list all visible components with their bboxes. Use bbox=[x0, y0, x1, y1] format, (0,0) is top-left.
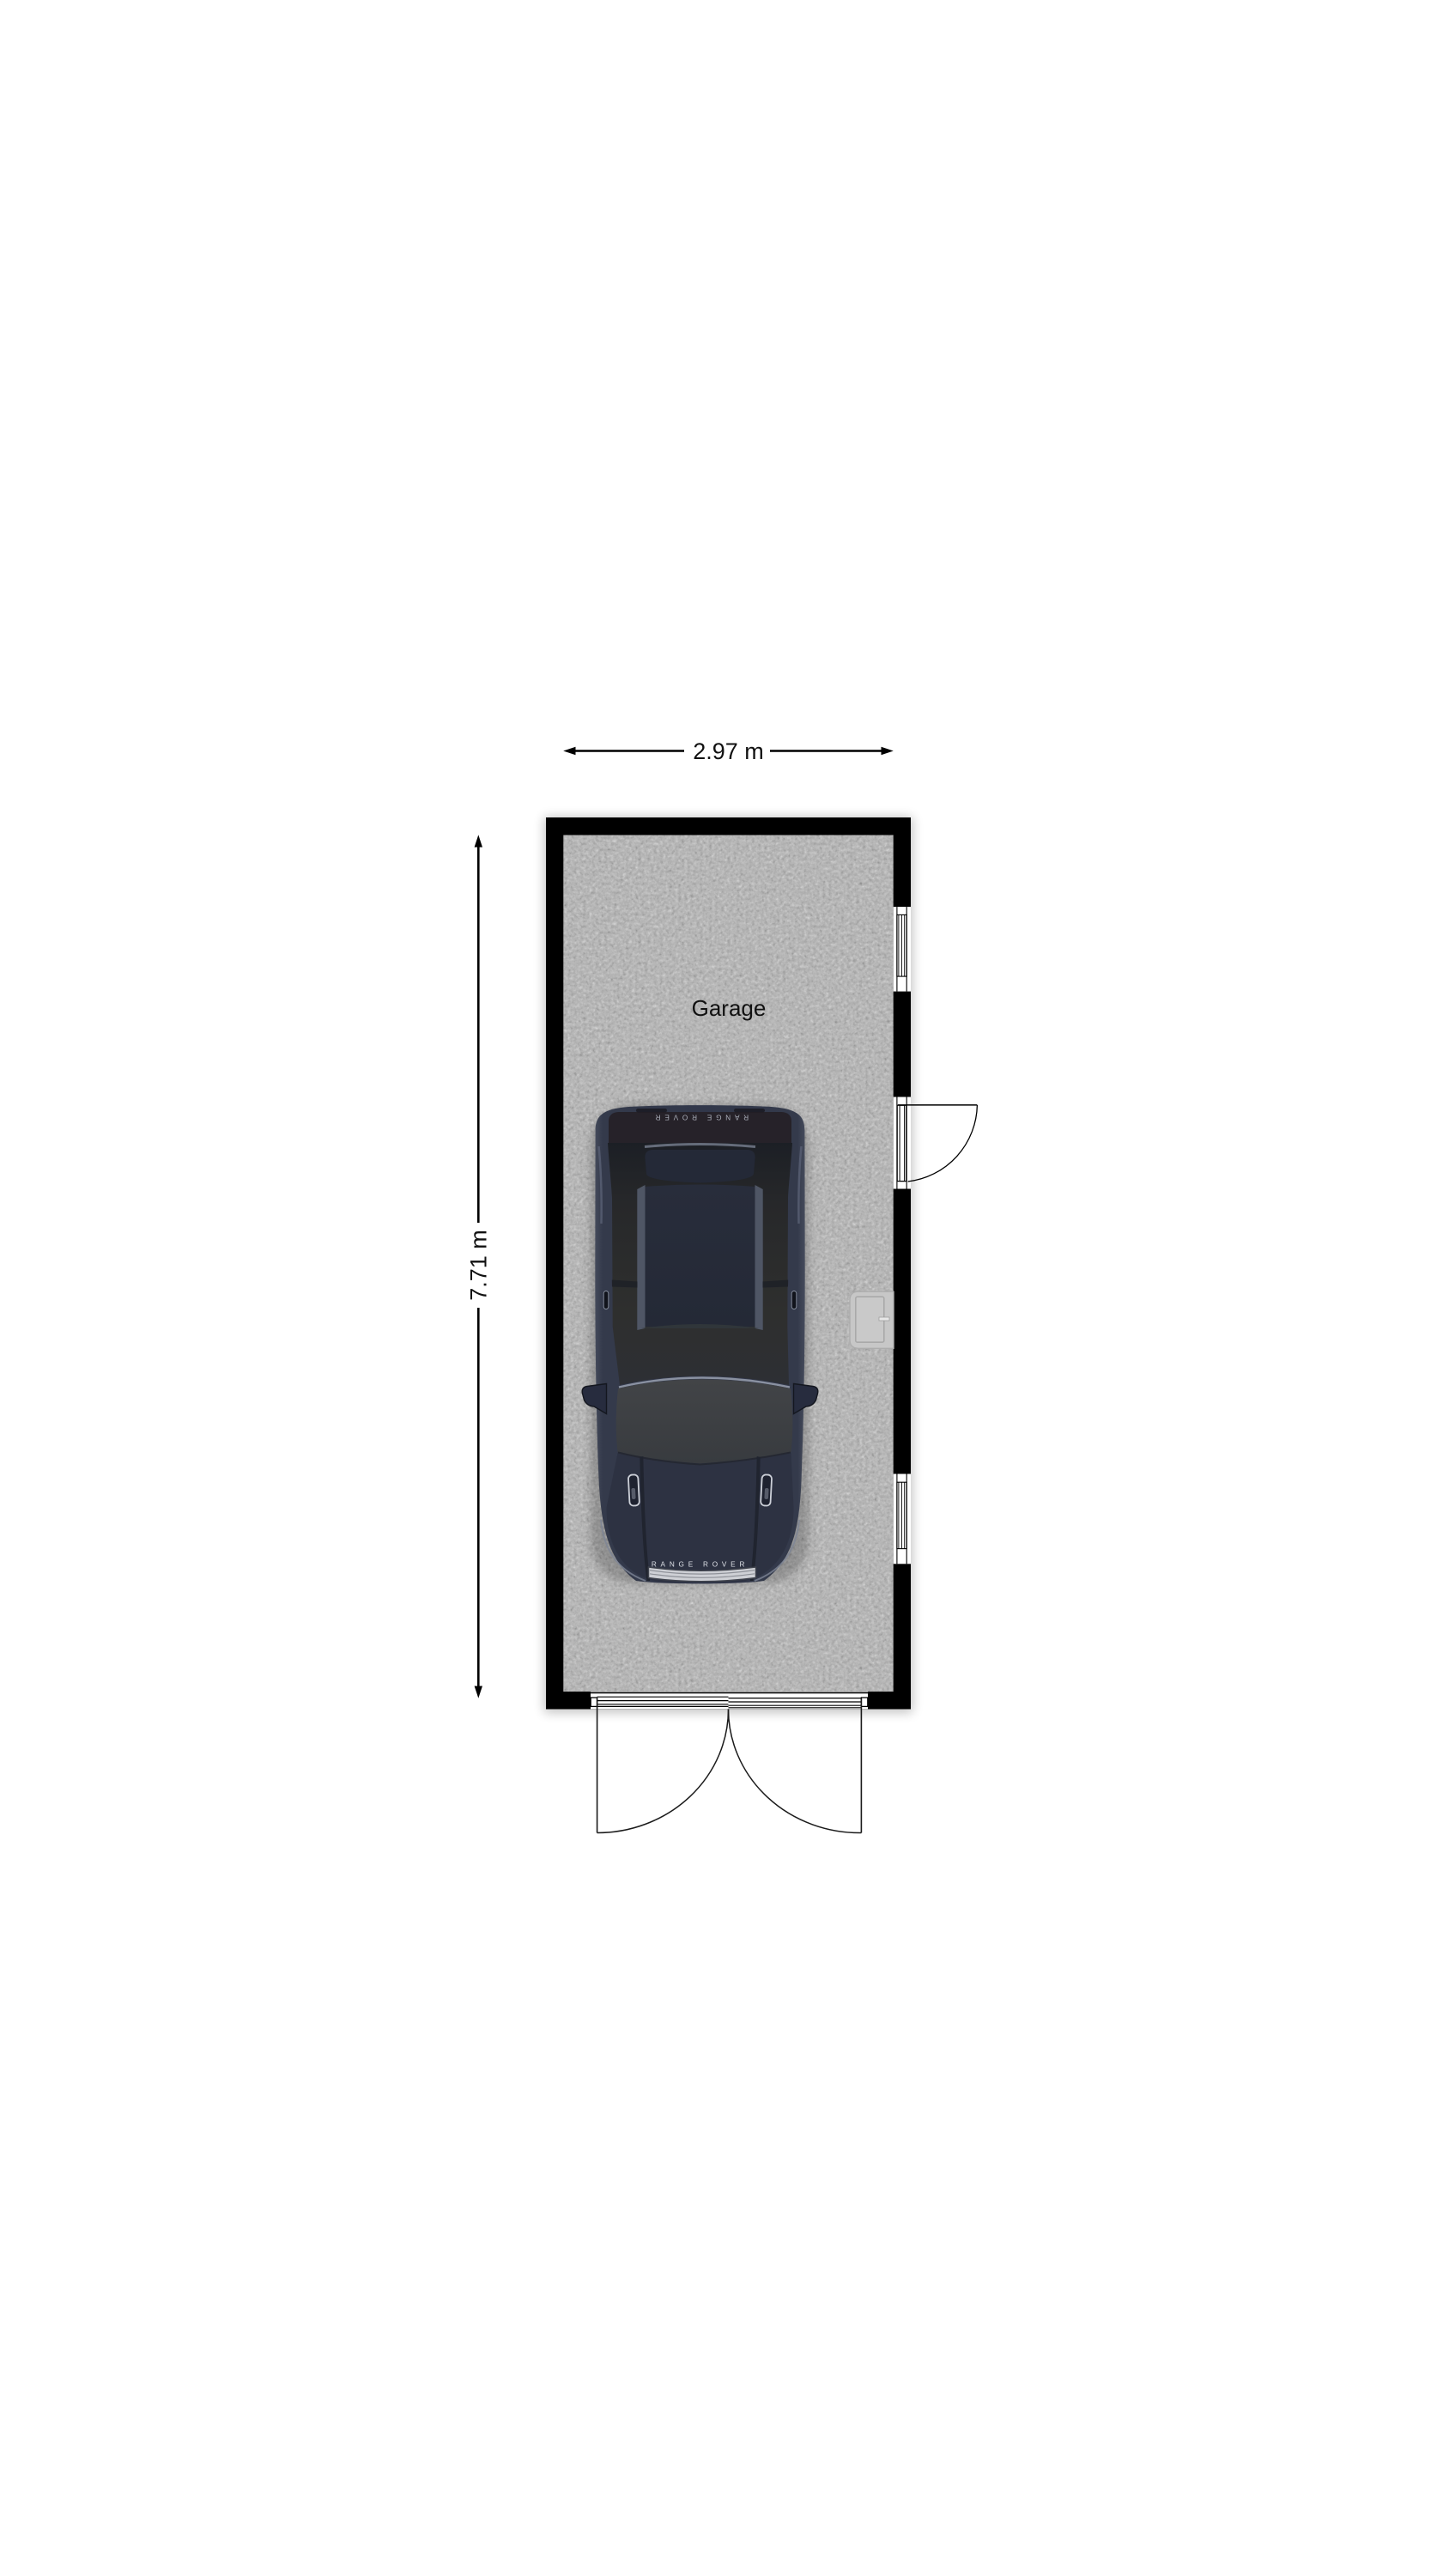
svg-text:2.97 m: 2.97 m bbox=[693, 738, 764, 764]
svg-text:RANGE ROVER: RANGE ROVER bbox=[652, 1560, 749, 1568]
svg-text:Garage: Garage bbox=[692, 995, 767, 1021]
svg-text:7.71 m: 7.71 m bbox=[465, 1230, 491, 1301]
svg-text:RANGE ROVER: RANGE ROVER bbox=[652, 1114, 749, 1121]
